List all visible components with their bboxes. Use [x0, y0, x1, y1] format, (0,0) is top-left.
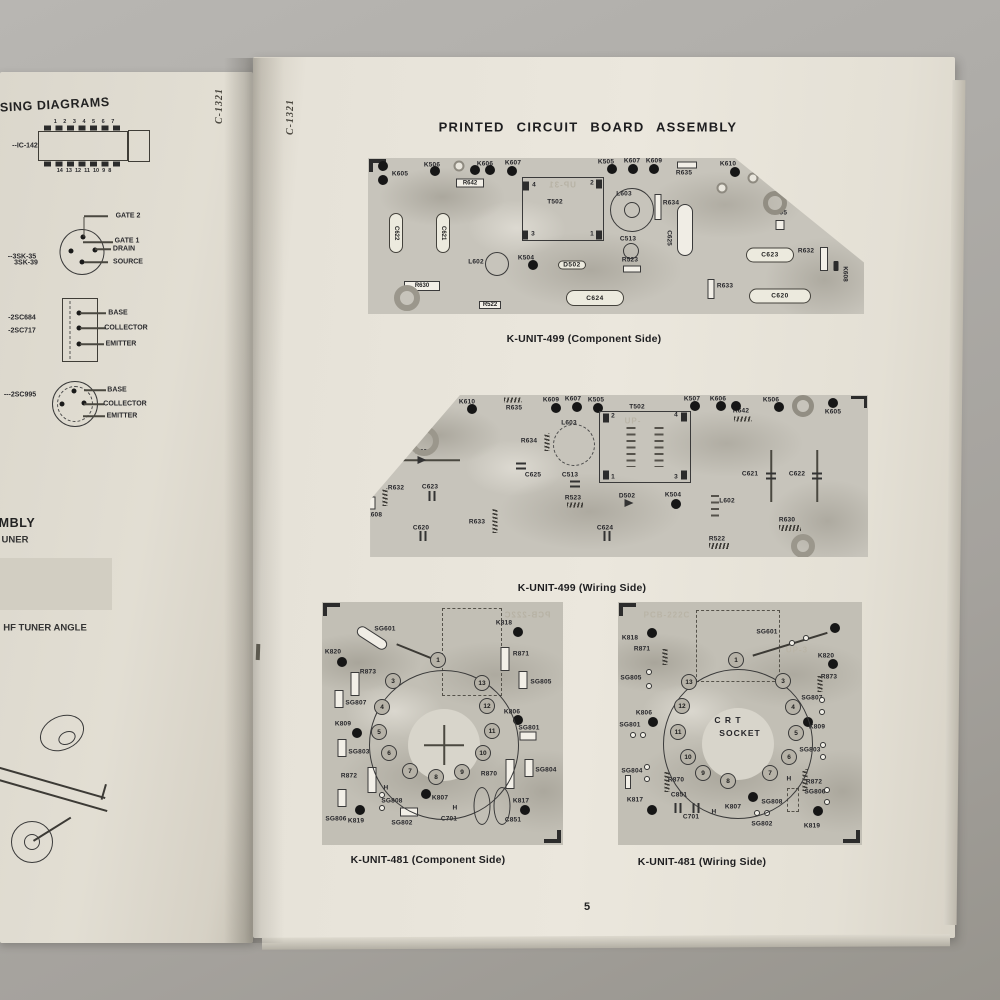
caph-shape — [604, 531, 611, 541]
recto-shape — [128, 130, 150, 162]
pcb-4: 4 — [374, 699, 390, 715]
pcb-k605: K605 — [825, 409, 841, 416]
pcb-l602: L602 — [719, 498, 735, 505]
sq-shape — [522, 231, 528, 240]
resw-shape — [776, 220, 785, 230]
resw-shape — [335, 690, 344, 708]
pcb-c625: C625 — [666, 230, 673, 246]
pcb-r642: R642 — [456, 179, 484, 188]
boxo-shape — [599, 411, 691, 483]
coilv-shape — [711, 495, 719, 517]
pcb-1: 1 — [430, 652, 446, 668]
pad-shape — [352, 728, 362, 738]
pcb-r872: R872 — [806, 779, 822, 786]
ringo-shape — [640, 732, 646, 738]
pad-shape — [470, 165, 480, 175]
pcb-t502: T502 — [547, 199, 563, 206]
caption-k-unit-481-wiring: K-UNIT-481 (Wiring Side) — [638, 856, 766, 868]
caption-k-unit-499-wiring: K-UNIT-499 (Wiring Side) — [518, 582, 646, 594]
ringd-shape — [792, 395, 814, 417]
pcb-up-3: UP-3 — [786, 646, 808, 655]
pad-shape — [551, 403, 561, 413]
pcb-r634: R634 — [521, 438, 537, 445]
pad-shape — [355, 805, 365, 815]
hline-shape — [84, 215, 108, 217]
donut-shape — [394, 285, 420, 311]
page-number: 5 — [584, 901, 590, 913]
dot-shape — [72, 389, 77, 394]
pcb-sg801: SG801 — [518, 725, 539, 732]
pcb-collector: COLLECTOR — [104, 325, 147, 332]
pcb-k-unit-481-wiring-side: PCB-222CK818R871SG805SG801K806SG601UP-3K… — [618, 602, 862, 845]
pad-shape — [528, 260, 538, 270]
circd-shape — [553, 424, 595, 466]
pcb-k809: K809 — [335, 721, 351, 728]
pcb-k819: K819 — [348, 818, 364, 825]
page-title: PRINTED CIRCUIT BOARD ASSEMBLY — [439, 120, 738, 135]
pcb-4: 4 — [532, 182, 536, 189]
pcb-7: 7 — [402, 763, 418, 779]
pad-shape — [647, 628, 657, 638]
pcb-9: 9 — [695, 765, 711, 781]
recto-shape — [38, 131, 128, 161]
pcb-up-: UP- — [625, 417, 642, 426]
pcb-sg601: SG601 — [374, 626, 395, 633]
pcb-r632: R632 — [798, 248, 814, 255]
pad-shape — [647, 805, 657, 815]
pcb-sg801: SG801 — [619, 722, 640, 729]
pcb-6: 6 — [781, 749, 797, 765]
zig-v-shape — [545, 433, 550, 451]
ring-shape — [443, 395, 454, 406]
pcb-gate-2: GATE 2 — [116, 213, 141, 220]
pcb-13: 13 — [681, 674, 697, 690]
pad-shape — [628, 164, 638, 174]
pcb-2: 2 — [590, 180, 594, 187]
sq-shape — [603, 471, 609, 480]
pcb-r522: R522 — [709, 536, 725, 543]
zig-v-shape — [663, 649, 668, 665]
pcb-11: 11 — [484, 723, 500, 739]
pcb-6: 6 — [381, 745, 397, 761]
pad-shape — [716, 401, 726, 411]
resw-shape — [501, 647, 510, 671]
pcb-r633: R633 — [717, 283, 733, 290]
pad-shape — [813, 806, 823, 816]
pcb-d502: D502 — [619, 493, 635, 500]
ringo-shape — [820, 754, 826, 760]
pcb-gate-1: GATE 1 — [115, 238, 140, 245]
pcb-c851: C851 — [505, 817, 521, 824]
pcb-d502: D502 — [558, 261, 586, 270]
pcb-k608: K608 — [842, 266, 849, 282]
pcb-c701: C701 — [683, 814, 699, 821]
zig-h-shape — [734, 417, 752, 422]
pcb-r873: R873 — [360, 669, 376, 676]
ringo-shape — [803, 635, 809, 641]
pcb--2sc995: ---2SC995 — [4, 392, 36, 399]
pcb-12: 12 — [479, 698, 495, 714]
resw-shape — [625, 775, 631, 789]
coilv-shape — [655, 427, 664, 467]
shade-shape — [0, 558, 112, 610]
pcb-4: 4 — [785, 699, 801, 715]
dio-shape — [418, 456, 427, 464]
pad-shape — [572, 402, 582, 412]
left-page: C-1321 ASING DIAGRAMS1 2 3 4 5 6 714 13 … — [0, 72, 253, 943]
pcb-c623: C623 — [746, 248, 794, 263]
pcb-r523: R523 — [565, 495, 581, 502]
pcb-c621: C621 — [742, 471, 758, 478]
ringo-shape — [379, 805, 385, 811]
pcb-1: 1 — [611, 474, 615, 481]
pcb-k-unit-499-wiring-side: K610R635K609K607K505T502UP-2413L603R634D… — [363, 395, 868, 557]
caption-k-unit-481-component: K-UNIT-481 (Component Side) — [351, 854, 506, 866]
zig-h-shape — [779, 525, 801, 531]
hline-shape — [84, 403, 104, 405]
pcb-uner: UNER — [2, 535, 29, 546]
donut-shape — [409, 426, 439, 456]
pcb-12: 12 — [674, 698, 690, 714]
pcb-3: 3 — [775, 673, 791, 689]
resw-shape — [677, 162, 697, 169]
pcb-k818: K818 — [496, 620, 512, 627]
pcb-k818: K818 — [622, 635, 638, 642]
pcb-sg601: SG601 — [756, 629, 777, 636]
pcb-r873: R873 — [821, 674, 837, 681]
pcb-sg804: SG804 — [621, 768, 642, 775]
pcb-1-2-3-4-5-6-7: 1 2 3 4 5 6 7 — [54, 119, 115, 125]
doc-code-right: C-1321 — [285, 99, 296, 135]
kdark-shape — [834, 261, 839, 271]
pcb-1: 1 — [590, 231, 594, 238]
pad-shape — [731, 401, 741, 411]
pad-shape — [690, 401, 700, 411]
hline-shape — [95, 248, 111, 250]
zig-h-shape — [709, 543, 729, 549]
pcb-l602: L602 — [468, 259, 484, 266]
ring-shape — [748, 173, 759, 184]
pad-shape — [649, 164, 659, 174]
pcb-sg805: SG805 — [530, 679, 551, 686]
ringo-shape — [644, 776, 650, 782]
hline-shape — [80, 343, 104, 345]
ringd-shape — [763, 191, 787, 215]
pcb-c622: C622 — [789, 471, 805, 478]
pcb-c621: C621 — [436, 213, 450, 253]
pcb-11: 11 — [670, 724, 686, 740]
sq-shape — [523, 182, 529, 191]
resw-shape — [369, 497, 376, 510]
resw-shape — [655, 194, 662, 220]
resw-shape — [708, 279, 715, 299]
pcb--2sc717: -2SC717 — [8, 328, 36, 335]
staple — [256, 644, 261, 660]
dio-shape — [625, 499, 634, 507]
ringo-shape — [819, 709, 825, 715]
pcb-l603: L603 — [616, 191, 632, 198]
pcb-5: 5 — [371, 724, 387, 740]
pcb-l603: L603 — [561, 420, 577, 427]
pad-shape — [828, 659, 838, 669]
pcb-sg807: SG807 — [345, 700, 366, 707]
hline-shape — [84, 389, 106, 391]
pad-shape — [467, 404, 477, 414]
pcb-c513: C513 — [620, 236, 636, 243]
ring-shape — [454, 161, 465, 172]
pcb-mbly: MBLY — [0, 516, 35, 530]
pad-shape — [607, 164, 617, 174]
pcb-emitter: EMITTER — [107, 413, 138, 420]
pad-shape — [648, 717, 658, 727]
pcb-10: 10 — [680, 749, 696, 765]
sq-shape — [596, 180, 602, 189]
hline-shape — [83, 241, 113, 243]
circo-shape — [485, 252, 509, 276]
pcb-9: 9 — [454, 764, 470, 780]
resw-shape — [520, 732, 537, 741]
capv-shape — [766, 473, 776, 480]
pcb-r523: R523 — [622, 257, 638, 264]
pcb-base: BASE — [108, 310, 127, 317]
resw-shape — [519, 671, 528, 689]
right-page: C-1321 PRINTED CIRCUIT BOARD ASSEMBLY K6… — [253, 57, 955, 938]
pcb-source: SOURCE — [113, 259, 143, 266]
sq-shape — [596, 231, 602, 240]
tabs-shape — [44, 162, 122, 167]
pcb-r630: R630 — [779, 517, 795, 524]
capv-shape — [812, 473, 822, 480]
pcb-8: 8 — [428, 769, 444, 785]
dashv-shape — [70, 301, 71, 359]
dot-shape — [69, 249, 74, 254]
pcb-k-unit-499-component-side: K605K506K606K607K505K607K609K610R635R642… — [368, 158, 864, 314]
ringo-shape — [644, 764, 650, 770]
pcb-5: 5 — [788, 725, 804, 741]
pcb-r522: R522 — [479, 301, 501, 309]
pcb-r635: R635 — [506, 405, 522, 412]
caph-shape — [429, 491, 436, 501]
pad-shape — [485, 165, 495, 175]
pcb-k819: K819 — [804, 823, 820, 830]
pcb-sg806: SG806 — [804, 789, 825, 796]
pcb-c624: C624 — [597, 525, 613, 532]
resw-shape — [525, 759, 534, 777]
pcb-t502: T502 — [629, 404, 645, 411]
pcb-pcb-222c: PCB-222C — [644, 611, 691, 620]
pcb-k820: K820 — [325, 649, 341, 656]
sq-shape — [681, 413, 687, 422]
pad-shape — [671, 499, 681, 509]
pcb-sg806: SG806 — [325, 816, 346, 823]
pad-shape — [830, 623, 840, 633]
pcb-sg803: SG803 — [348, 749, 369, 756]
pcb--ic-142: --IC-142 — [12, 143, 38, 150]
vline-shape — [443, 725, 445, 765]
pcb-up-31: UP-31 — [548, 181, 576, 190]
circo-shape — [624, 202, 640, 218]
hline-shape — [80, 327, 106, 329]
pcb-3: 3 — [385, 673, 401, 689]
pcb-c625: C625 — [525, 472, 541, 479]
dot-shape — [60, 402, 65, 407]
caph-shape — [675, 803, 682, 813]
ring-shape — [717, 183, 728, 194]
pcb-sg802: SG802 — [391, 820, 412, 827]
doc-code-left: C-1321 — [214, 88, 225, 124]
pad-shape — [507, 166, 517, 176]
coilv-shape — [627, 427, 636, 467]
pcb-14-13-12-11-10-9-8: 14 13 12 11 10 9 8 — [57, 168, 112, 174]
pcb-r632: R632 — [388, 485, 404, 492]
ringo-shape — [824, 787, 830, 793]
pcb-collector: COLLECTOR — [103, 401, 146, 408]
pad-shape — [520, 805, 530, 815]
tabs-shape — [44, 126, 122, 131]
resw-shape — [623, 266, 641, 273]
ringo-shape — [646, 669, 652, 675]
zig-v-shape — [383, 488, 388, 506]
pcb-13: 13 — [474, 675, 490, 691]
pcb-sg804: SG804 — [535, 767, 556, 774]
page-bottom-edge — [262, 934, 950, 950]
sq-shape — [681, 471, 687, 480]
zig-v-shape — [818, 676, 823, 692]
pcb-base: BASE — [107, 387, 126, 394]
pad-shape — [828, 398, 838, 408]
pcb-asing-diagrams: ASING DIAGRAMS — [0, 95, 110, 115]
pcb-drain: DRAIN — [113, 246, 135, 253]
pcb-r634: R634 — [663, 200, 679, 207]
pcb-3sk-39: 3SK-39 — [14, 260, 38, 267]
vline-shape — [84, 217, 85, 237]
pcb--2sc684: -2SC684 — [8, 315, 36, 322]
pcb-k608: K608 — [366, 512, 382, 519]
pcb-hf-tuner-angle: HF TUNER ANGLE — [3, 623, 87, 634]
sq-shape — [603, 414, 609, 423]
pcb-pcb-222c: PCB-222C — [504, 611, 551, 620]
pcb-sg805: SG805 — [620, 675, 641, 682]
resw-shape — [351, 672, 360, 696]
zig-v-shape — [493, 509, 498, 533]
resw-shape — [338, 789, 347, 807]
pcb-c-r-t: C R T — [714, 715, 741, 725]
pcb-socket: SOCKET — [719, 728, 760, 738]
pcb-r872: R872 — [341, 773, 357, 780]
capv-shape — [570, 481, 580, 488]
resw-shape — [820, 247, 828, 271]
pcb-c623: C623 — [422, 484, 438, 491]
ringo-shape — [820, 742, 826, 748]
pcb-1: 1 — [728, 652, 744, 668]
pcb-k504: K504 — [665, 492, 681, 499]
pcb-r871: R871 — [513, 651, 529, 658]
pcb-7: 7 — [762, 765, 778, 781]
pad-shape — [730, 167, 740, 177]
pcb-r635: R635 — [676, 170, 692, 177]
capw-shape — [677, 204, 693, 256]
hline-shape — [83, 415, 105, 417]
pcb-c622: C622 — [389, 213, 403, 253]
pcb-k817: K817 — [513, 798, 529, 805]
pcb-k605: K605 — [392, 171, 408, 178]
pcb-4: 4 — [674, 412, 678, 419]
pcb-2: 2 — [611, 413, 615, 420]
pcb-emitter: EMITTER — [106, 341, 137, 348]
hline-shape — [84, 261, 108, 263]
pcb-c513: C513 — [562, 472, 578, 479]
pcb-10: 10 — [475, 745, 491, 761]
pcb-k806: K806 — [636, 710, 652, 717]
pcb-8: 8 — [720, 773, 736, 789]
pcb-k817: K817 — [627, 797, 643, 804]
pad-shape — [430, 166, 440, 176]
pad-shape — [774, 402, 784, 412]
zig-h-shape — [504, 398, 522, 403]
resw-shape — [338, 739, 347, 757]
pad-shape — [378, 175, 388, 185]
pcb-3: 3 — [674, 474, 678, 481]
hline-shape — [80, 312, 106, 314]
pad-shape — [337, 657, 347, 667]
pcb-3: 3 — [531, 231, 535, 238]
donut-shape — [791, 534, 815, 558]
pcb-c624: C624 — [566, 290, 624, 306]
ringo-shape — [630, 732, 636, 738]
pcb-k-unit-481-component-side: PCB-222CSG601K820R873SG807K818R871SG805K… — [322, 602, 563, 845]
ringo-shape — [819, 697, 825, 703]
pcb-sg802: SG802 — [751, 821, 772, 828]
caph-shape — [420, 531, 427, 541]
ringo-shape — [824, 799, 830, 805]
pcb-c620: C620 — [749, 289, 811, 304]
pcb-c620: C620 — [413, 525, 429, 532]
pcb-r633: R633 — [469, 519, 485, 526]
capv-shape — [516, 463, 526, 470]
pad-shape — [513, 627, 523, 637]
pad-shape — [378, 161, 388, 171]
pcb-r871: R871 — [634, 646, 650, 653]
caption-k-unit-499-component: K-UNIT-499 (Component Side) — [507, 333, 662, 345]
zig-h-shape — [567, 503, 583, 508]
ringo-shape — [646, 683, 652, 689]
